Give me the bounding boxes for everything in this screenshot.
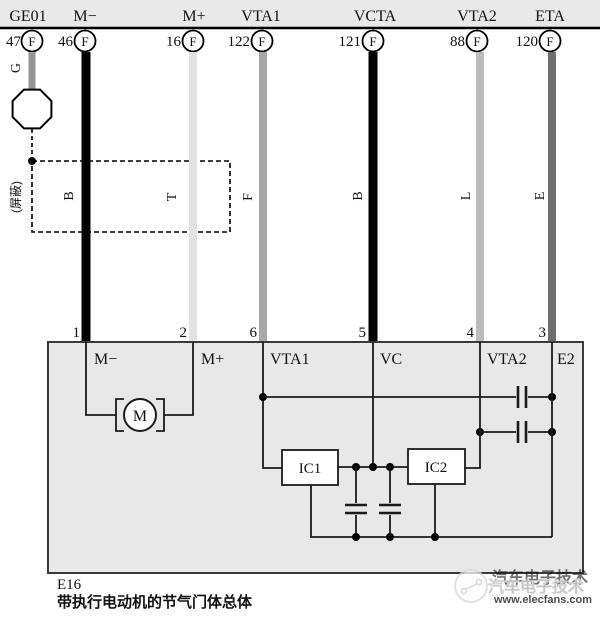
watermark-url: www.elecfans.com <box>493 594 592 606</box>
connector-letter: F <box>473 34 480 49</box>
terminal-vcta: VCTA 121 F B <box>339 8 397 342</box>
junction-dot <box>369 463 377 471</box>
terminal-m-plus: M+ 16 F T <box>165 8 206 342</box>
connector-letter: F <box>258 34 265 49</box>
wire-color-label: B <box>62 191 77 200</box>
ground-octagon <box>13 90 52 129</box>
component-id: E16 <box>57 577 82 593</box>
wire-color-label: T <box>165 192 180 201</box>
connector-letter: F <box>28 34 35 49</box>
junction-dot <box>386 533 394 541</box>
terminal-name: M+ <box>182 8 205 25</box>
motor-label: M <box>133 408 147 425</box>
ic2-label: IC2 <box>425 460 448 476</box>
pin-number: 6 <box>250 325 258 341</box>
terminal-m-minus: M− 46 F B <box>58 8 97 342</box>
shield-label: (屏蔽) <box>9 181 23 213</box>
wire-color-label: F <box>241 193 256 201</box>
diagram-canvas: GE01 47 F G (屏蔽) M− 46 F B M+ 16 F T VTA… <box>0 0 600 617</box>
pin-number: 121 <box>339 34 362 50</box>
pin-number: 47 <box>6 34 22 50</box>
watermark: 汽车电子技术 汽车电子技术 www.elecfans.com <box>455 568 592 606</box>
pin-number: 16 <box>166 34 182 50</box>
pin-label: M− <box>94 351 117 368</box>
pin-number: 4 <box>467 325 475 341</box>
component-description: 带执行电动机的节气门体总体 <box>57 593 253 611</box>
pin-label: VC <box>380 351 402 368</box>
terminal-name: GE01 <box>9 8 46 25</box>
connector-letter: F <box>369 34 376 49</box>
junction-dot <box>431 533 439 541</box>
pin-label: VTA1 <box>270 351 310 368</box>
terminal-name: M− <box>73 8 96 25</box>
pin-number: 3 <box>539 325 547 341</box>
pin-number: 1 <box>73 325 81 341</box>
connector-letter: F <box>546 34 553 49</box>
terminal-vta2: VTA2 88 F L <box>450 8 497 342</box>
component-pin-numbers: 1 2 6 5 4 3 <box>73 325 547 341</box>
terminal-name: VCTA <box>354 8 397 25</box>
wiring-diagram: GE01 47 F G (屏蔽) M− 46 F B M+ 16 F T VTA… <box>0 0 600 617</box>
component-caption: E16 带执行电动机的节气门体总体 <box>57 577 253 611</box>
junction-dot <box>352 533 360 541</box>
pin-number: 46 <box>58 34 74 50</box>
pin-number: 120 <box>516 34 539 50</box>
wire-color-label: G <box>9 63 24 73</box>
terminal-name: ETA <box>535 8 565 25</box>
terminal-name: VTA2 <box>457 8 497 25</box>
wire-color-label: L <box>459 192 474 201</box>
pin-number: 88 <box>450 34 465 50</box>
terminal-name: VTA1 <box>241 8 281 25</box>
pin-number: 5 <box>359 325 367 341</box>
terminal-eta: ETA 120 F E <box>516 8 566 342</box>
pin-label: VTA2 <box>487 351 527 368</box>
connector-letter: F <box>189 34 196 49</box>
wire-color-label: E <box>533 192 548 201</box>
ic1-label: IC1 <box>299 461 322 477</box>
terminal-vta1: VTA1 122 F F <box>228 8 281 342</box>
pin-number: 2 <box>180 325 188 341</box>
pin-label: E2 <box>557 351 575 368</box>
terminal-ge01: GE01 47 F G <box>6 8 47 90</box>
wire-color-label: B <box>351 191 366 200</box>
connector-letter: F <box>81 34 88 49</box>
pin-number: 122 <box>228 34 251 50</box>
pin-label: M+ <box>201 351 224 368</box>
